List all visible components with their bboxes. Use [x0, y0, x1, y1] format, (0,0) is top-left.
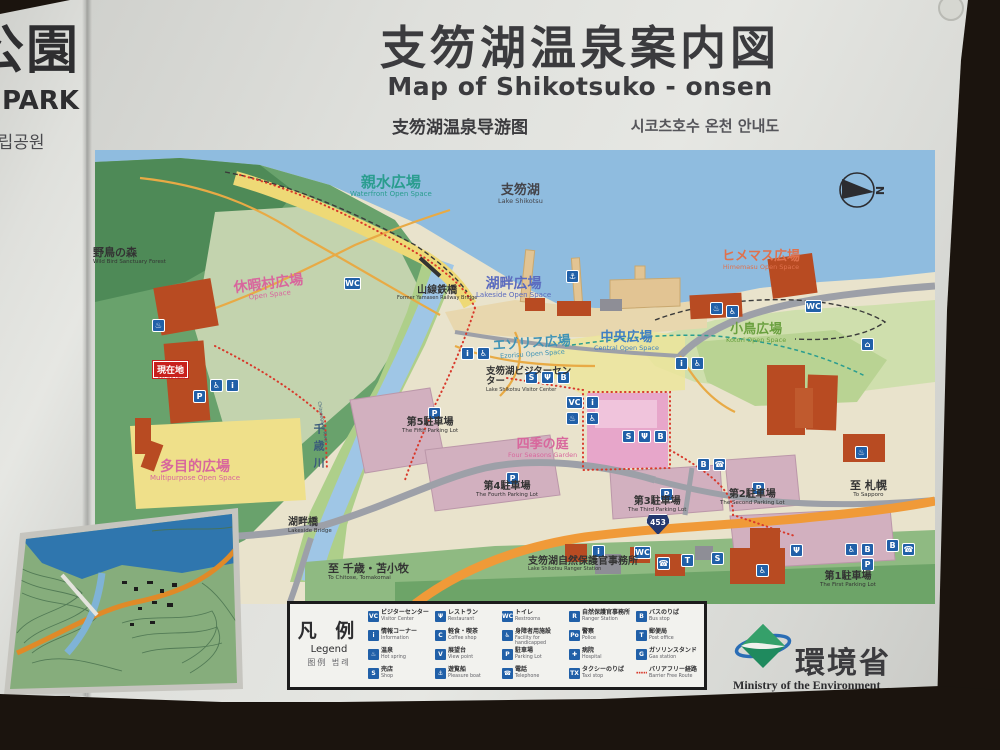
legend-item-post-office: T郵便局Post office: [636, 629, 703, 644]
label-second-parking-lot: 第2駐車場The Second Parking Lot: [720, 489, 785, 506]
label-to-sapporo: 至 札幌To Sapporo: [850, 480, 887, 498]
wheelchair-icon: ♿: [210, 379, 223, 392]
legend-item-bus-stop: BバスのりばBus stop: [636, 610, 703, 625]
hospital-icon: ✚: [569, 649, 580, 660]
onsen-icon: ♨: [566, 412, 579, 425]
legend-item-shop: S売店Shop: [368, 667, 435, 682]
legend-item-barrier-free-route: ·····バリアフリー経路Barrier Free Route: [636, 667, 703, 682]
legend-item-visitor-center: VCビジターセンターVisitor Center: [368, 610, 435, 625]
parking-icon: P: [502, 649, 513, 660]
telephone-icon: ☎: [657, 557, 670, 570]
label-fifth-parking-lot: 第5駐車場The Fifth Parking Lot: [402, 417, 458, 434]
gas-icon: G: [636, 649, 647, 660]
shop-icon: S: [622, 430, 635, 443]
information-icon: i: [586, 396, 599, 409]
sign-title-english: Map of Shikotsuko - onsen: [330, 72, 830, 101]
onsen-icon: ♨: [368, 649, 379, 660]
legend-item-gas-station: GガソリンスタンドGas station: [636, 648, 703, 663]
wheelchair-icon: ♿: [726, 305, 739, 318]
legend-item-restaurant: ΨレストランRestaurant: [435, 610, 502, 625]
legend-item-hot-spring: ♨温泉Hot spring: [368, 648, 435, 663]
pleasure-boat-icon: ⚓: [566, 270, 579, 283]
adjacent-sign-title: 公園: [0, 8, 86, 83]
legend-item-pleasure-boat: ⚓遊覧船Pleasure boat: [435, 667, 502, 682]
legend-item-view-point: V展望台View point: [435, 648, 502, 663]
bus-stop-icon: B: [861, 543, 874, 556]
restaurant-icon: Ψ: [790, 544, 803, 557]
inset-topographic-map: [2, 503, 248, 699]
telephone-icon: ☎: [502, 668, 513, 679]
label-visitor-center: 支笏湖ビジターセンターLake Shikotsu Visitor Center: [486, 367, 578, 393]
coffee-icon: C: [435, 630, 446, 641]
label-yamasen-railway-bridge: 山線鉄橋Former Yamasen Railway Bridge: [397, 285, 477, 302]
legend-column-1: VCビジターセンターVisitor Center i情報コーナーInformat…: [368, 604, 435, 687]
legend-box: 凡 例 Legend 图例 범례 VCビジターセンターVisitor Cente…: [287, 601, 707, 690]
label-kotori-open-space: 小鳥広場Kotori Open Space: [726, 323, 786, 344]
label-wild-bird-forest: 野鳥の森Wild Bird Sanctuary Forest: [93, 247, 166, 265]
parking-icon: P: [861, 558, 874, 571]
post-icon: T: [636, 630, 647, 641]
legend-item-taxi-stop: TXタクシーのりばTaxi stop: [569, 667, 636, 682]
bus-stop-icon: B: [654, 430, 667, 443]
ranger-icon: R: [569, 611, 580, 622]
toilet-icon: WC: [502, 611, 513, 622]
label-lake-shikotsu: 支笏湖Lake Shikotsu: [498, 184, 543, 205]
legend-column-3: WCトイレRestrooms ♿身障者用施設Facility for handi…: [502, 604, 569, 687]
legend-item-parking-lot: P駐車場Parking Lot: [502, 648, 569, 663]
ministry-name-japanese: 環境省: [795, 638, 891, 682]
label-ranger-station: 支笏湖自然保護官事務所Lake Shikotsu Ranger Station: [528, 556, 638, 573]
visitor-center-icon: VC: [368, 611, 379, 622]
restaurant-icon: Ψ: [435, 611, 446, 622]
onsen-icon: ♨: [855, 446, 868, 459]
onsen-icon: ♨: [710, 302, 723, 315]
information-icon: i: [368, 630, 379, 641]
legend-title: 凡 例 Legend 图例 범례: [290, 604, 368, 687]
legend-item-coffee-shop: C軽食・喫茶Coffee shop: [435, 629, 502, 644]
legend-item-hospital: ✚病院Hospital: [569, 648, 636, 663]
wheelchair-icon: ♿: [502, 630, 513, 641]
label-third-parking-lot: 第3駐車場The Third Parking Lot: [628, 496, 686, 513]
legend-item-handicapped-facility: ♿身障者用施設Facility for handicapped: [502, 629, 569, 644]
wheelchair-icon: ♿: [756, 564, 769, 577]
label-himemasu-open-space: ヒメマス広場Himemasu Open Space: [722, 250, 800, 271]
label-lakeside-open-space: 湖畔広場Lakeside Open Space: [476, 277, 551, 300]
bus-stop-icon: B: [697, 458, 710, 471]
viewpoint-icon: V: [435, 649, 446, 660]
sign-title-korean: 시코츠호수 온천 안내도: [590, 115, 820, 136]
taxi-icon: TX: [569, 668, 580, 679]
legend-column-4: R自然保護官事務所Ranger Station Po警察Police ✚病院Ho…: [569, 604, 636, 687]
label-lakeside-bridge: 湖畔橋Lakeside Bridge: [288, 517, 332, 534]
label-multipurpose-open-space: 多目的広場Multipurpose Open Space: [150, 460, 240, 483]
onsen-icon: ♨: [152, 319, 165, 332]
legend-item-information: i情報コーナーInformation: [368, 629, 435, 644]
information-icon: i: [461, 347, 474, 360]
parking-icon: P: [193, 390, 206, 403]
sign-title-chinese: 支笏湖温泉导游图: [360, 113, 560, 138]
wheelchair-icon: ♿: [586, 412, 599, 425]
label-four-seasons-garden: 四季の庭Four Seasons Garden: [508, 438, 577, 459]
adjacent-sign-title-ko: 국립공원: [0, 128, 82, 153]
visitor-center-icon: VC: [566, 396, 583, 409]
wheelchair-icon: ♿: [845, 543, 858, 556]
label-fourth-parking-lot: 第4駐車場The Fourth Parking Lot: [476, 481, 538, 498]
barrier-free-route-icon: ·····: [636, 668, 647, 679]
label-to-chitose-tomakomai: 至 千歳・苫小牧To Chitose, Tomakomai: [328, 563, 409, 581]
north-arrow-icon: N: [836, 168, 888, 216]
legend-item-telephone: ☎電話Telephone: [502, 667, 569, 682]
wheelchair-icon: ♿: [477, 347, 490, 360]
post-office-icon: T: [681, 554, 694, 567]
photo-of-map-sign: { "adjacent_sign": { "title_ja": "公園", "…: [0, 0, 1000, 750]
adjacent-sign-title-en: PARK: [2, 86, 92, 116]
bus-stop-icon: B: [886, 539, 899, 552]
legend-item-police: Po警察Police: [569, 629, 636, 644]
legend-item-restrooms: WCトイレRestrooms: [502, 610, 569, 625]
toilet-icon: WC: [805, 300, 822, 313]
legend-column-2: ΨレストランRestaurant C軽食・喫茶Coffee shop V展望台V…: [435, 604, 502, 687]
you-are-here-english: You are here: [151, 376, 191, 381]
sign-title-japanese: 支笏湖温泉案内図: [330, 12, 830, 78]
information-icon: i: [226, 379, 239, 392]
toilet-icon: WC: [344, 277, 361, 290]
label-central-open-space: 中央広場Central Open Space: [594, 331, 659, 352]
ministry-logo: [733, 620, 795, 676]
shop-icon: S: [368, 668, 379, 679]
compass-n-letter: N: [873, 186, 886, 195]
telephone-icon: ☎: [902, 543, 915, 556]
lodge-icon: ⌂: [861, 338, 874, 351]
label-waterfront-open-space: 親水広場Waterfront Open Space: [350, 174, 432, 198]
information-icon: i: [675, 357, 688, 370]
boat-icon: ⚓: [435, 668, 446, 679]
restaurant-icon: Ψ: [638, 430, 651, 443]
police-icon: Po: [569, 630, 580, 641]
ministry-of-environment-block: 環境省 Ministry of the Environment: [733, 620, 933, 680]
legend-column-5: BバスのりばBus stop T郵便局Post office Gガソリンスタンド…: [636, 604, 703, 687]
wheelchair-icon: ♿: [691, 357, 704, 370]
shop-icon: S: [711, 552, 724, 565]
legend-item-ranger-station: R自然保護官事務所Ranger Station: [569, 610, 636, 625]
label-first-parking-lot: 第1駐車場The First Parking Lot: [820, 571, 876, 588]
telephone-icon: ☎: [713, 458, 726, 471]
bus-icon: B: [636, 611, 647, 622]
